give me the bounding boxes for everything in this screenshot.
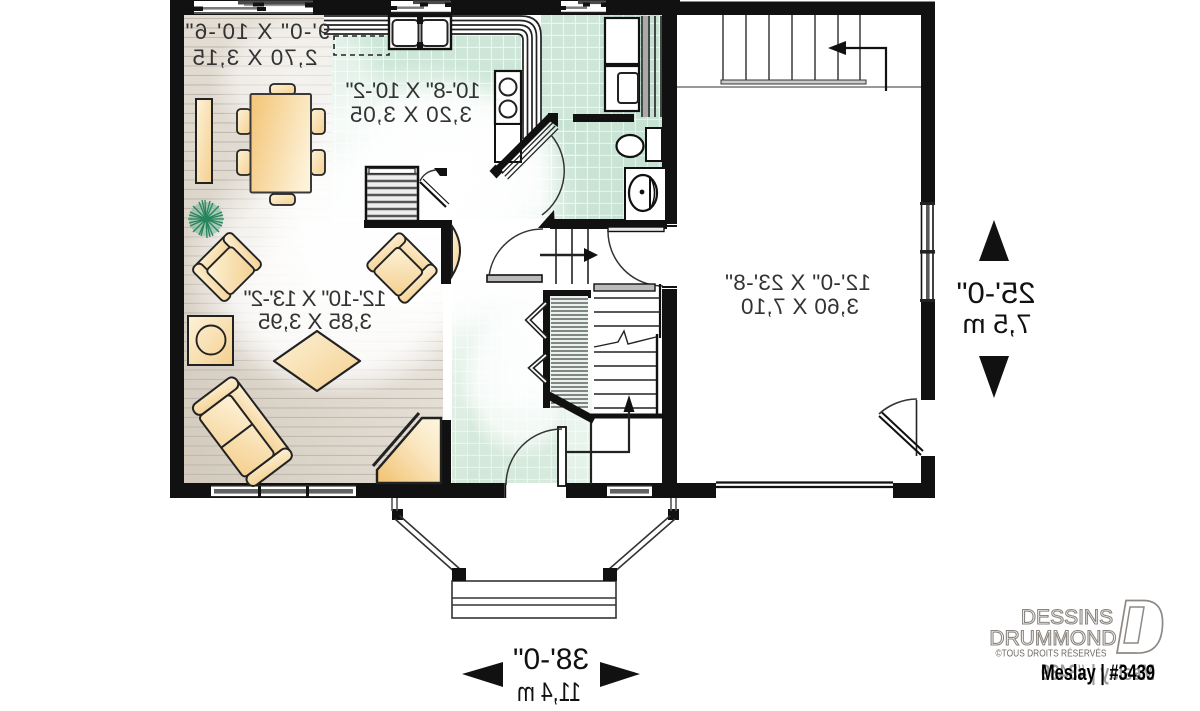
svg-text:25'-0": 25'-0" <box>957 277 1036 310</box>
svg-text:DESSINS: DESSINS <box>1021 606 1113 629</box>
svg-text:2,70 X 3,15: 2,70 X 3,15 <box>193 45 318 70</box>
svg-text:10'-8" X 10'-2": 10'-8" X 10'-2" <box>346 78 481 103</box>
svg-text:Meslay | #3439: Meslay | #3439 <box>1041 660 1155 685</box>
svg-text:12'-10" X 13'-2": 12'-10" X 13'-2" <box>244 286 387 311</box>
svg-text:3,85 X 3,95: 3,85 X 3,95 <box>258 309 372 334</box>
svg-text:3,20 X 3,05: 3,20 X 3,05 <box>350 102 472 127</box>
svg-text:©TOUS DROITS RÉSERVÉS: ©TOUS DROITS RÉSERVÉS <box>996 647 1107 660</box>
svg-text:11,4 m: 11,4 m <box>517 677 581 707</box>
svg-text:12'-0" X 23'-8": 12'-0" X 23'-8" <box>725 270 871 295</box>
svg-text:3,60 X 7,10: 3,60 X 7,10 <box>741 294 859 319</box>
svg-text:7,5 m: 7,5 m <box>963 309 1032 339</box>
svg-text:9'-0" X 10'-6": 9'-0" X 10'-6" <box>186 19 331 44</box>
svg-text:38'-0": 38'-0" <box>513 643 589 676</box>
